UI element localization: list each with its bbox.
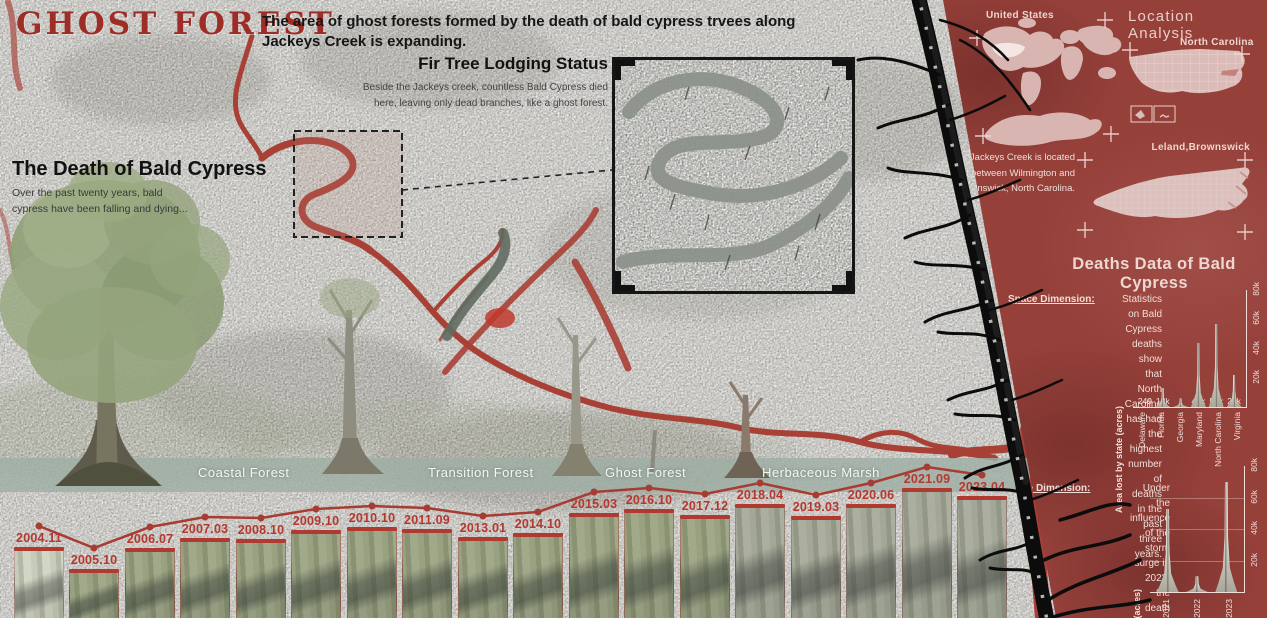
tile-year-label: 2011.09 (402, 513, 452, 529)
space-tick-label: 80k (1251, 282, 1261, 296)
tile-year-label: 2008.10 (236, 523, 286, 539)
tile-year-label: 2007.03 (180, 522, 230, 538)
lodging-section-heading: Fir Tree Lodging Status (352, 54, 608, 74)
tile-photo (236, 543, 286, 618)
space-chart-ylabel: Area lost by state (acres) (1114, 406, 1124, 513)
connector-dashed-line (402, 170, 612, 190)
tile-year-label: 2006.07 (125, 532, 175, 548)
timeline-tile: 2018.04 (735, 488, 785, 618)
space-bar-slot: 57k (1207, 290, 1225, 407)
timeline-tile: 2019.03 (791, 500, 841, 618)
tile-year-label: 2004.11 (14, 531, 64, 547)
timeline-tile: 2010.10 (347, 511, 397, 618)
tile-photo (347, 531, 397, 618)
timeline-tile: 2023.04 (957, 480, 1007, 618)
timeline-tile: 2015.03 (569, 497, 619, 618)
time-tick-label: 60k (1249, 490, 1259, 504)
highlight-dashed-box (294, 131, 402, 237)
space-category-label: Maryland (1194, 412, 1204, 447)
time-category-label: 2023 (1224, 599, 1234, 618)
tile-photo (180, 542, 230, 618)
dead-tree (320, 278, 384, 474)
subtitle: The area of ghost forests formed by the … (262, 12, 837, 53)
tile-photo (69, 573, 119, 618)
death-section-body: Over the past twenty years, bald cypress… (12, 186, 192, 218)
timeline-tile: 2008.10 (236, 523, 286, 618)
time-chart (1150, 466, 1245, 593)
time-bar-slot (1212, 466, 1241, 592)
tree-bar-2023 (1215, 482, 1237, 592)
tile-year-label: 2023.04 (957, 480, 1007, 496)
us-map (1129, 49, 1245, 122)
tile-year-label: 2019.03 (791, 500, 841, 516)
inset-aerial-photo (612, 57, 855, 294)
timeline-tile: 2011.09 (402, 513, 452, 618)
creek-path (0, 210, 14, 268)
poster-canvas: GHOST FOREST The area of ghost forests f… (0, 0, 1267, 618)
space-category-label: Georgia (1175, 412, 1185, 442)
tile-year-label: 2020.06 (846, 488, 896, 504)
tile-year-label: 2021.09 (902, 472, 952, 488)
timeline-tile: 2020.06 (846, 488, 896, 618)
death-section-heading: The Death of Bald Cypress (12, 158, 267, 181)
space-bar-slot: 22k (1225, 290, 1243, 407)
hemisphere-map (984, 113, 1101, 146)
tile-photo (624, 513, 674, 618)
timeline-tile: 2006.07 (125, 532, 175, 618)
creek-path (433, 230, 502, 312)
zone-label-herbaceous-marsh: Herbaceous Marsh (762, 465, 880, 480)
time-tick-label: 80k (1249, 458, 1259, 472)
creek-pond (485, 308, 515, 328)
space-category-label: Delaware (1137, 412, 1147, 448)
timeline-tile: 2009.10 (291, 514, 341, 618)
timeline-tile: 2014.10 (513, 517, 563, 618)
tile-year-label: 2015.03 (569, 497, 619, 513)
space-category-label: Florida (1156, 412, 1166, 438)
creek-path (860, 432, 985, 455)
space-tick-label: 60k (1251, 311, 1261, 325)
timeline-tile: 2004.11 (14, 531, 64, 618)
tile-photo (402, 533, 452, 618)
space-tick-label: 40k (1251, 341, 1261, 355)
tile-photo (291, 534, 341, 618)
space-bar-slot: 44k (1189, 290, 1207, 407)
time-tick-label: 20k (1249, 553, 1259, 567)
tile-photo (791, 520, 841, 618)
tree-bar-2022 (1186, 576, 1208, 592)
creek-path (371, 251, 487, 358)
tile-photo (513, 537, 563, 618)
space-category-label: North Carolina (1213, 412, 1223, 467)
tile-year-label: 2018.04 (735, 488, 785, 504)
tile-year-label: 2014.10 (513, 517, 563, 533)
time-tick-label: 40k (1249, 521, 1259, 535)
tile-year-label: 2005.10 (69, 553, 119, 569)
time-category-label: 2022 (1192, 599, 1202, 618)
tile-photo (735, 508, 785, 618)
tile-photo (569, 517, 619, 618)
tile-year-label: 2017.12 (680, 499, 730, 515)
creek-path (440, 276, 488, 340)
tile-photo (125, 552, 175, 618)
timeline-tile: 2017.12 (680, 499, 730, 618)
timeline-tile: 2021.09 (902, 472, 952, 618)
tile-photo (458, 541, 508, 618)
space-bar-slot: 249 (1136, 290, 1154, 407)
timeline-tile: 2007.03 (180, 522, 230, 618)
zone-label-ghost-forest: Ghost Forest (605, 465, 686, 480)
world-map (982, 18, 1121, 105)
tile-year-label: 2009.10 (291, 514, 341, 530)
tile-photo (957, 500, 1007, 618)
tile-year-label: 2013.01 (458, 521, 508, 537)
creek-path (952, 445, 1028, 455)
dead-tree (724, 382, 770, 478)
time-bar-slot (1153, 466, 1182, 592)
tree-bar-north-carolina (1209, 324, 1224, 407)
tile-photo (846, 508, 896, 618)
space-bar-slot: 13k (1154, 290, 1172, 407)
space-chart: 249 13k 44k 57k 22k (1133, 290, 1247, 408)
timeline-tile: 2005.10 (69, 553, 119, 618)
timeline-tile: 2016.10 (624, 493, 674, 618)
creek-path (235, 36, 262, 158)
zone-label-coastal-forest: Coastal Forest (198, 465, 290, 480)
lodging-section: Fir Tree Lodging Status Beside the Jacke… (352, 54, 608, 111)
dead-tree (552, 318, 602, 476)
tile-year-label: 2010.10 (347, 511, 397, 527)
hawaii-inset-box (1154, 106, 1175, 122)
tile-photo (14, 551, 64, 618)
time-chart-ylabel: Area lost per year (acres) (1132, 589, 1142, 618)
time-bar-slot (1182, 466, 1211, 592)
space-category-label: Virginia (1232, 412, 1242, 440)
tree-bar-georgia (1173, 398, 1188, 407)
creek-path (445, 210, 596, 372)
lodging-section-body: Beside the Jackeys creek, countless Bald… (352, 80, 608, 111)
bar-value-label: 249 (1138, 396, 1152, 406)
dark-creek-channel (447, 233, 505, 336)
nc-state-map (1094, 167, 1250, 218)
time-category-label: 2021 (1161, 599, 1171, 618)
creek-path (487, 358, 995, 458)
space-tick-label: 20k (1251, 370, 1261, 384)
zone-label-transition-forest: Transition Forest (428, 465, 534, 480)
tile-photo (902, 492, 952, 618)
space-bar-slot (1172, 290, 1190, 407)
timeline-tile: 2013.01 (458, 521, 508, 618)
tree-bar-2021 (1157, 509, 1179, 592)
creek-path (262, 141, 371, 252)
tile-year-label: 2016.10 (624, 493, 674, 509)
tile-photo (680, 519, 730, 618)
